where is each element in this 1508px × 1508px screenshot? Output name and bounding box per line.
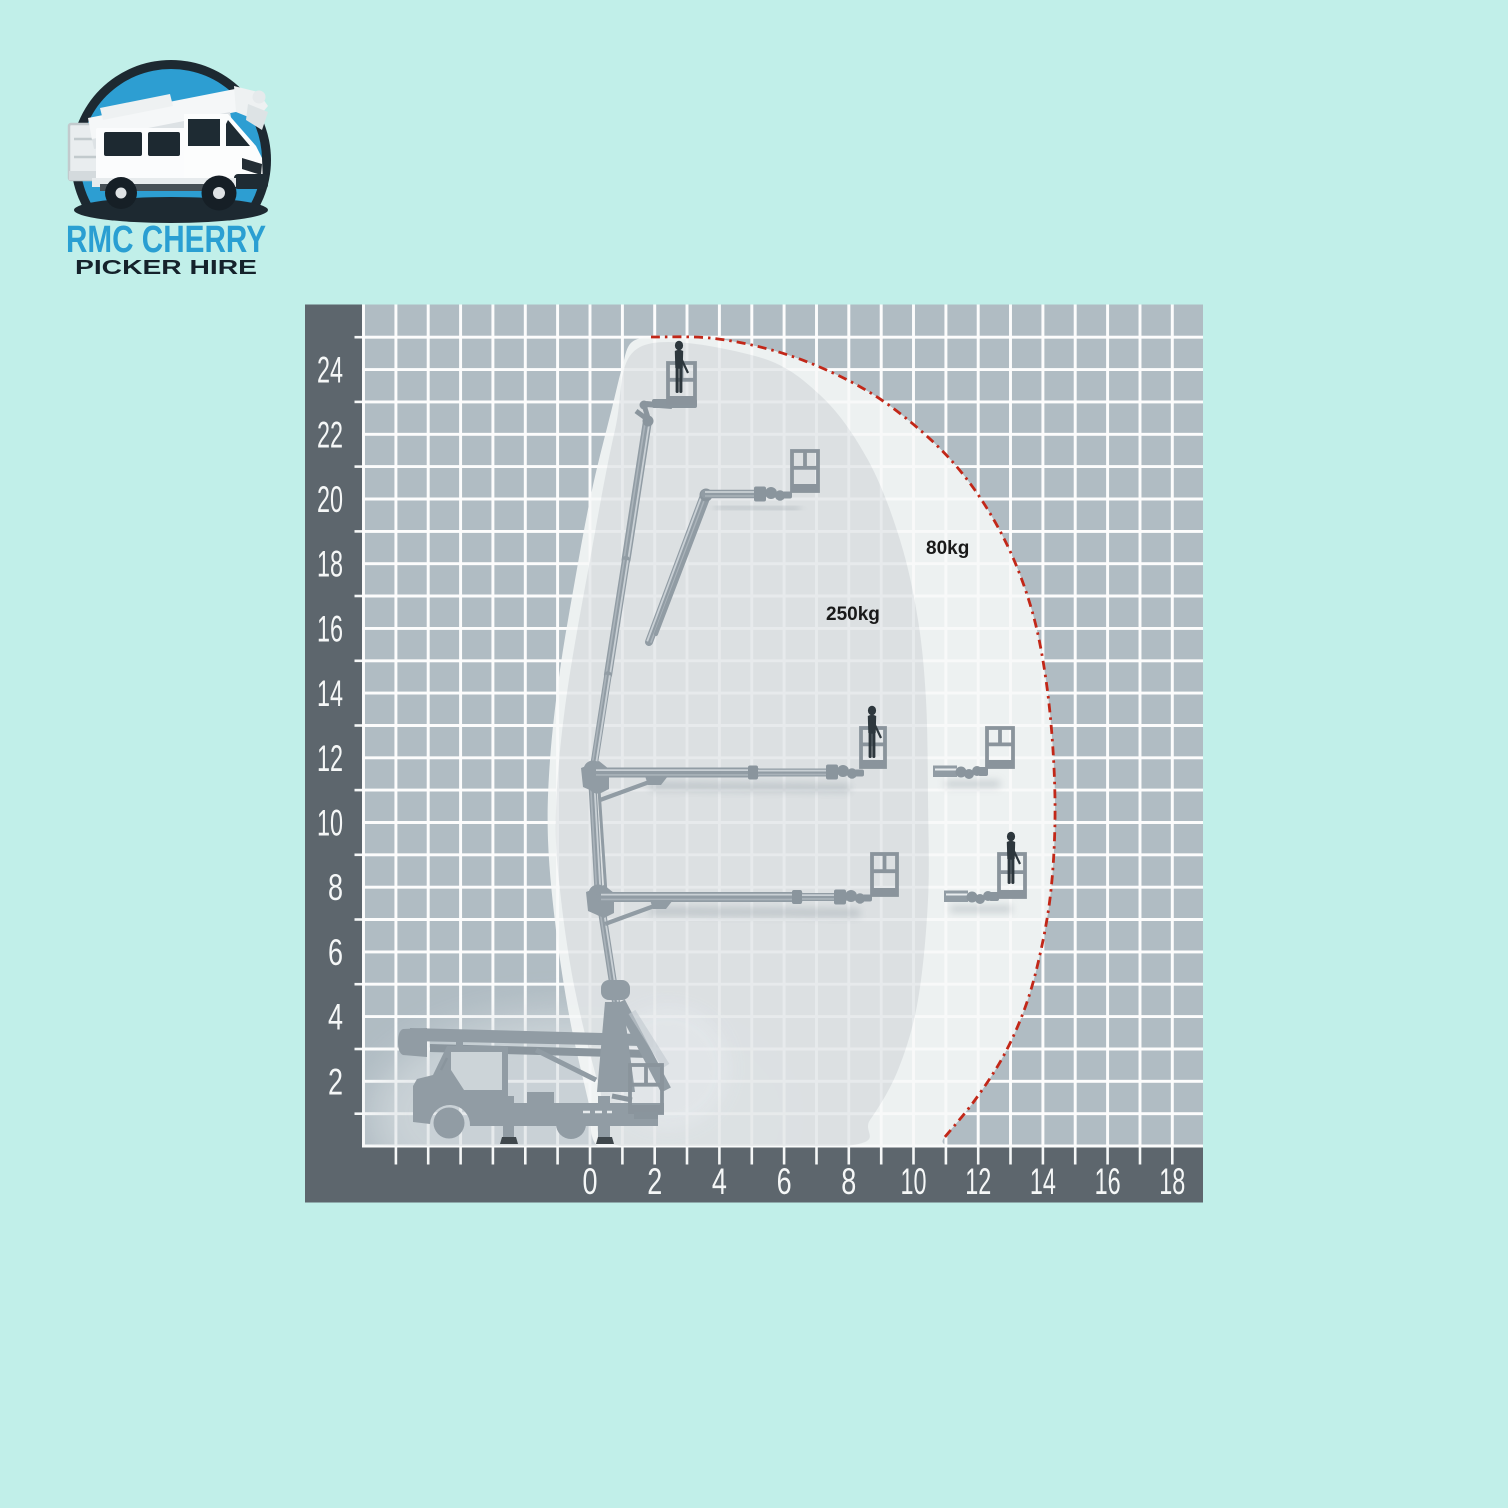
svg-text:14: 14	[1030, 1161, 1056, 1202]
svg-text:PICKER HIRE: PICKER HIRE	[75, 257, 257, 279]
svg-text:12: 12	[317, 738, 343, 779]
svg-text:16: 16	[317, 608, 343, 649]
svg-text:4: 4	[712, 1161, 727, 1202]
svg-text:14: 14	[317, 673, 343, 714]
svg-text:20: 20	[317, 479, 343, 520]
svg-text:8: 8	[841, 1161, 856, 1202]
svg-text:16: 16	[1095, 1161, 1121, 1202]
svg-text:2: 2	[328, 1061, 343, 1102]
svg-text:6: 6	[777, 1161, 792, 1202]
svg-text:18: 18	[1159, 1161, 1185, 1202]
svg-text:10: 10	[901, 1161, 927, 1202]
svg-text:12: 12	[965, 1161, 991, 1202]
svg-text:10: 10	[317, 803, 343, 844]
svg-text:24: 24	[317, 350, 343, 391]
svg-text:18: 18	[317, 544, 343, 585]
svg-text:2: 2	[647, 1161, 662, 1202]
svg-text:22: 22	[317, 414, 343, 455]
svg-text:RMC CHERRY: RMC CHERRY	[66, 219, 266, 261]
svg-text:250kg: 250kg	[826, 604, 880, 625]
svg-text:6: 6	[328, 932, 343, 973]
svg-text:8: 8	[328, 867, 343, 908]
svg-text:0: 0	[583, 1161, 598, 1202]
svg-text:4: 4	[328, 997, 343, 1038]
svg-text:80kg: 80kg	[926, 538, 969, 559]
